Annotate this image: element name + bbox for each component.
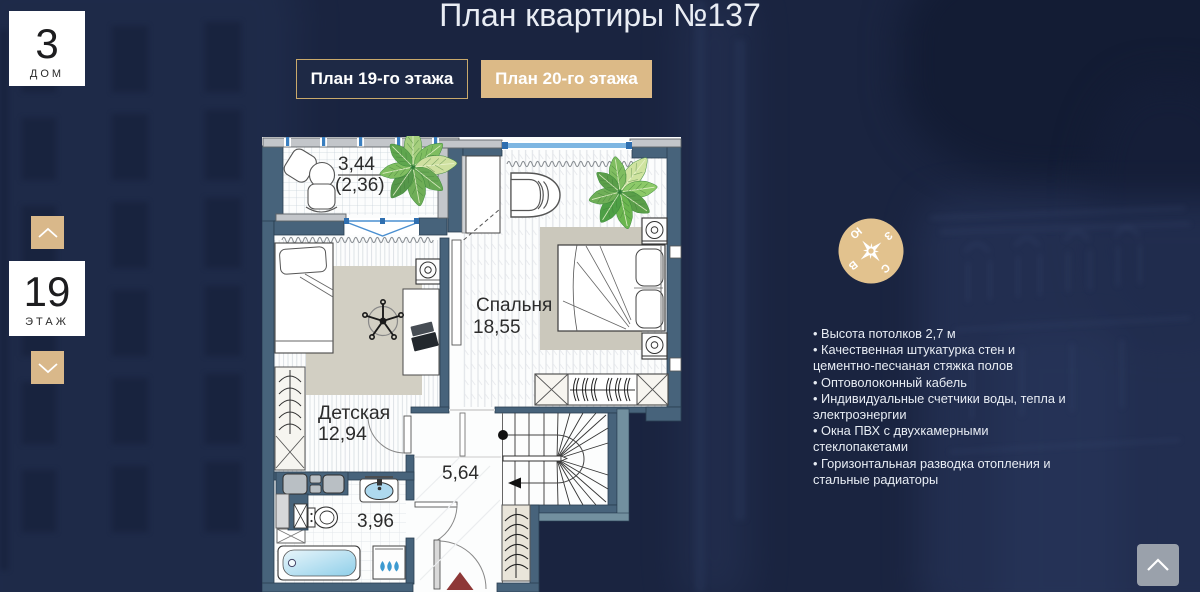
svg-text:3,44: 3,44 [338,154,375,175]
svg-text:18,55: 18,55 [473,317,521,338]
svg-text:Детская: Детская [318,402,390,424]
svg-text:(2,36): (2,36) [335,175,385,196]
svg-text:3,96: 3,96 [357,511,394,532]
svg-text:5,64: 5,64 [442,463,479,484]
svg-text:Спальня: Спальня [476,295,552,316]
svg-text:12,94: 12,94 [318,423,367,445]
